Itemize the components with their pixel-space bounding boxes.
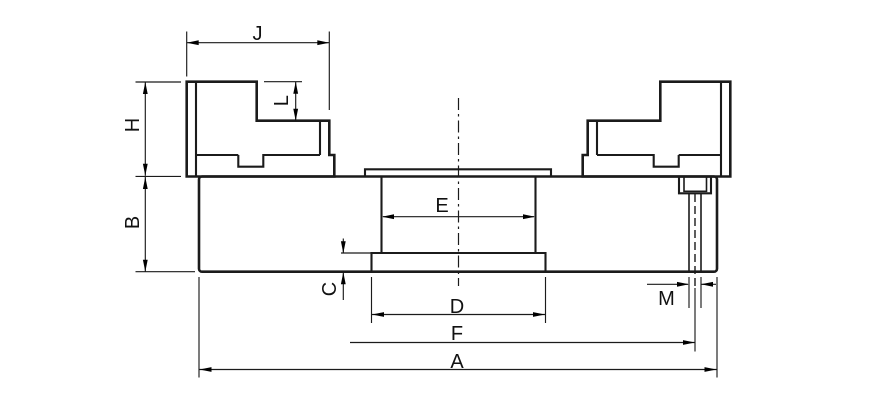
left-jaw xyxy=(187,82,335,177)
dim-label-h: H xyxy=(122,118,144,132)
dim-label-m: M xyxy=(658,288,675,310)
dim-label-e: E xyxy=(435,195,448,217)
dimension-c: C xyxy=(319,239,371,301)
dim-label-l: L xyxy=(271,95,293,106)
dim-label-f: F xyxy=(451,323,463,345)
dim-label-b: B xyxy=(122,216,144,229)
dim-label-j: J xyxy=(253,23,263,45)
right-jaw xyxy=(583,82,731,177)
dim-label-c: C xyxy=(319,282,341,296)
dim-label-a: A xyxy=(450,351,464,373)
dim-label-d: D xyxy=(450,296,464,318)
technical-drawing-page: J H B L E xyxy=(0,0,870,400)
chuck-cross-section-drawing: J H B L E xyxy=(0,0,870,400)
dimension-l: L xyxy=(264,82,302,121)
dimension-m: M xyxy=(647,277,716,310)
dimension-h: H xyxy=(122,82,181,176)
dimension-b: B xyxy=(122,177,195,272)
dimension-f: F xyxy=(350,288,695,352)
